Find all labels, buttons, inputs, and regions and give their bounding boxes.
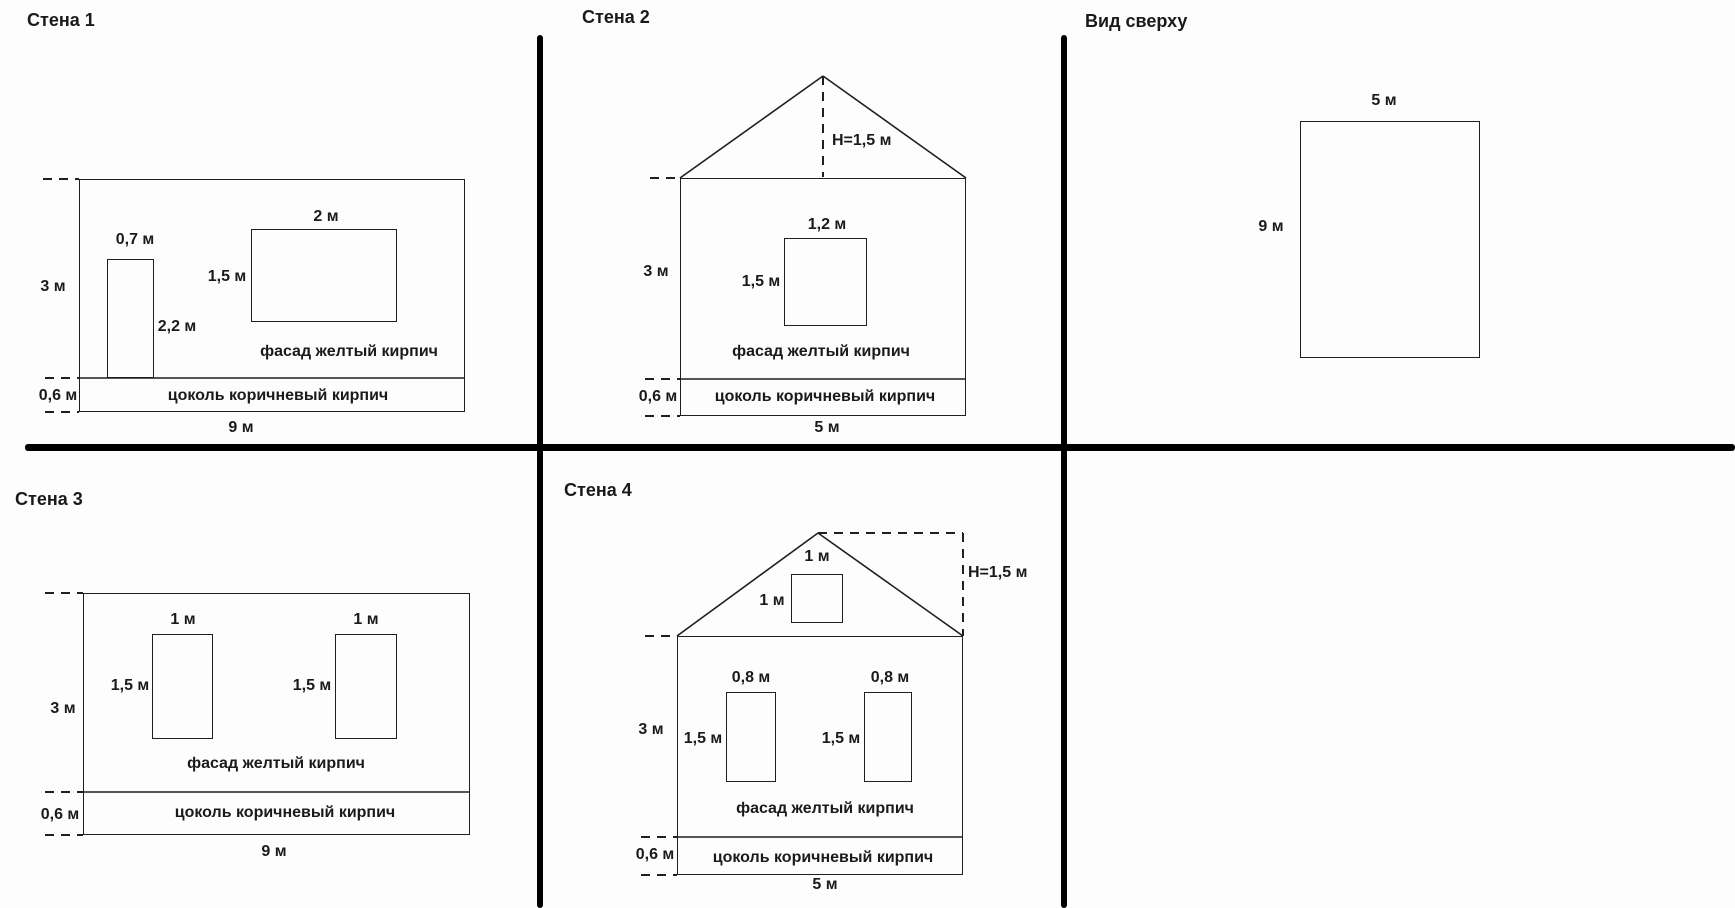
wall4-height-label: 3 м xyxy=(638,722,663,738)
horizontal-divider xyxy=(25,444,1735,451)
wall2-title: Стена 2 xyxy=(582,8,650,26)
wall4-outline xyxy=(677,636,963,875)
wall1-plinth-label: цоколь коричневый кирпич xyxy=(168,388,388,404)
wall2-roof-left-slope xyxy=(680,76,823,178)
wall4-window1-height-label: 1,5 м xyxy=(684,731,723,747)
wall1-facade-label: фасад желтый кирпич xyxy=(260,344,438,360)
vertical-divider-1 xyxy=(537,35,543,908)
wall2-roof-right-slope xyxy=(823,76,966,178)
wall4-width-label: 5 м xyxy=(812,877,837,893)
top-view-width-label: 5 м xyxy=(1371,93,1396,109)
wall4-window-1 xyxy=(726,692,776,782)
top-view-title: Вид сверху xyxy=(1085,12,1187,30)
wall4-plinth-height-label: 0,6 м xyxy=(636,847,675,863)
wall4-attic-window-height-label: 1 м xyxy=(759,593,784,609)
wall3-plinth-label: цоколь коричневый кирпич xyxy=(175,805,395,821)
wall2-width-label: 5 м xyxy=(814,420,839,436)
wall2-window-width-label: 1,2 м xyxy=(808,217,847,233)
wall4-attic-window-width-label: 1 м xyxy=(804,549,829,565)
wall3-window1-height-label: 1,5 м xyxy=(111,678,150,694)
wall2-facade-label: фасад желтый кирпич xyxy=(732,344,910,360)
top-view-depth-label: 9 м xyxy=(1258,219,1283,235)
wall1-door-width-label: 0,7 м xyxy=(116,232,155,248)
wall4-plinth-label: цоколь коричневый кирпич xyxy=(713,850,933,866)
wall4-attic-window xyxy=(791,574,843,623)
wall4-window2-height-label: 1,5 м xyxy=(822,731,861,747)
wall1-plinth-height-label: 0,6 м xyxy=(39,388,78,404)
wall4-window-2 xyxy=(864,692,912,782)
wall2-window-height-label: 1,5 м xyxy=(742,274,781,290)
wall2-plinth-height-label: 0,6 м xyxy=(639,389,678,405)
wall3-window1-width-label: 1 м xyxy=(170,612,195,628)
wall4-facade-label: фасад желтый кирпич xyxy=(736,801,914,817)
vertical-divider-2 xyxy=(1061,35,1067,908)
wall1-door-height-label: 2,2 м xyxy=(158,319,197,335)
wall4-window1-width-label: 0,8 м xyxy=(732,670,771,686)
wall4-window2-width-label: 0,8 м xyxy=(871,670,910,686)
wall2-roof-height-label: H=1,5 м xyxy=(832,133,891,149)
wall1-door xyxy=(107,259,154,378)
wall1-title: Стена 1 xyxy=(27,11,95,29)
wall3-outline xyxy=(83,593,470,835)
top-view-outline xyxy=(1300,121,1480,358)
wall1-window-width-label: 2 м xyxy=(313,209,338,225)
wall4-roof-height-label: H=1,5 м xyxy=(968,565,1027,581)
wall3-window2-height-label: 1,5 м xyxy=(293,678,332,694)
wall3-facade-label: фасад желтый кирпич xyxy=(187,756,365,772)
wall3-height-label: 3 м xyxy=(50,701,75,717)
wall2-plinth-label: цоколь коричневый кирпич xyxy=(715,389,935,405)
wall3-window-2 xyxy=(335,634,397,739)
wall4-title: Стена 4 xyxy=(564,481,632,499)
wall3-window-1 xyxy=(152,634,213,739)
elevation-drawing-canvas: Стена 1 0,7 м 2,2 м 2 м 1,5 м 3 м 0,6 м … xyxy=(0,0,1735,908)
wall2-window xyxy=(784,238,867,326)
wall3-plinth-height-label: 0,6 м xyxy=(41,807,80,823)
wall1-height-label: 3 м xyxy=(40,279,65,295)
wall3-width-label: 9 м xyxy=(261,844,286,860)
wall2-height-label: 3 м xyxy=(643,264,668,280)
wall3-window2-width-label: 1 м xyxy=(353,612,378,628)
wall1-window-height-label: 1,5 м xyxy=(208,269,247,285)
wall1-window xyxy=(251,229,397,322)
wall1-width-label: 9 м xyxy=(228,420,253,436)
wall3-title: Стена 3 xyxy=(15,490,83,508)
